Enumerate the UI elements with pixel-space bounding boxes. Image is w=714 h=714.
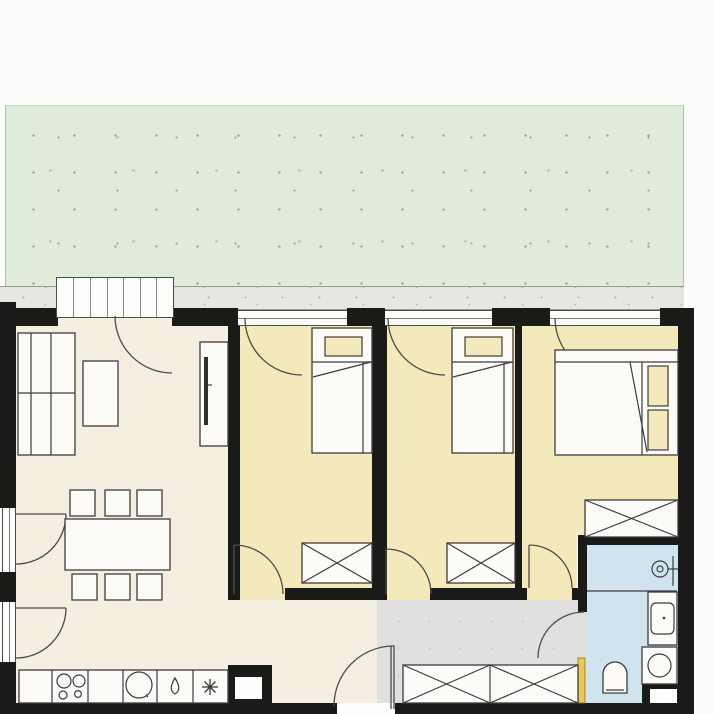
balcony-door-bedroom1-arc bbox=[245, 318, 302, 375]
hall-closet-row bbox=[403, 665, 578, 703]
dining-chair bbox=[137, 574, 162, 600]
bathroom-door-arc bbox=[538, 612, 584, 658]
washbasin bbox=[648, 592, 677, 645]
dining-chair bbox=[105, 490, 130, 516]
bedroom-2-furniture bbox=[447, 328, 515, 583]
garden-door2-arc bbox=[16, 608, 66, 658]
balcony-door-living-arc bbox=[115, 316, 172, 373]
washing-machine bbox=[642, 647, 677, 684]
bed-single-2 bbox=[452, 328, 513, 453]
garden-door1-arc bbox=[16, 514, 66, 564]
bathroom-door-leaf bbox=[578, 658, 585, 703]
coffee-table bbox=[83, 361, 118, 426]
toilet bbox=[603, 662, 627, 693]
bedroom3-door-arc bbox=[529, 545, 572, 588]
bedroom1-door-arc bbox=[234, 545, 283, 594]
bedroom-3-furniture bbox=[555, 350, 678, 537]
corner-sofa bbox=[18, 333, 75, 455]
bedroom2-door-arc bbox=[386, 549, 431, 594]
dining-chair bbox=[105, 574, 130, 600]
shower-icon bbox=[652, 556, 678, 586]
wardrobe-2 bbox=[447, 543, 515, 583]
bed-double bbox=[555, 350, 678, 455]
wardrobe-1 bbox=[302, 543, 372, 583]
bed-single-1 bbox=[312, 328, 372, 453]
entrance-door-arc bbox=[334, 646, 391, 706]
dining-chair bbox=[72, 574, 97, 600]
bathroom-fixtures bbox=[587, 556, 678, 693]
balcony-door-bedroom2-arc bbox=[388, 318, 445, 375]
dining-table bbox=[65, 519, 170, 570]
tv-sideboard bbox=[200, 342, 228, 446]
furniture-layer bbox=[0, 0, 714, 714]
dining-set bbox=[65, 490, 170, 600]
entrance-door-leaf bbox=[391, 646, 394, 709]
tv-screen bbox=[204, 357, 208, 425]
wardrobe-3 bbox=[585, 500, 678, 537]
bedroom-1-furniture bbox=[302, 328, 372, 583]
dining-chair bbox=[70, 490, 95, 516]
living-room-furniture bbox=[18, 333, 228, 600]
floor-plan bbox=[0, 0, 714, 714]
kitchen bbox=[19, 670, 228, 703]
dining-chair bbox=[137, 490, 162, 516]
